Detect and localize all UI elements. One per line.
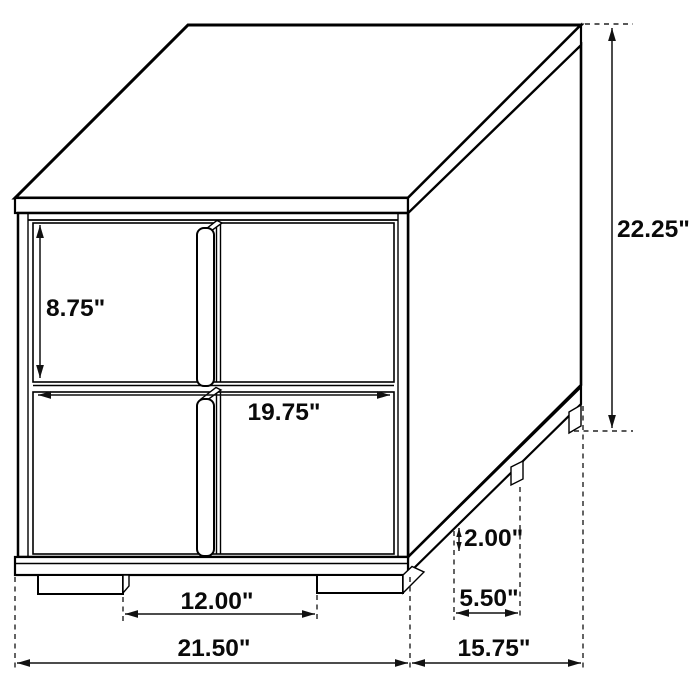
dim-overall-height: 22.25" [574,24,690,431]
dimension-diagram-page: 8.75" 19.75" 22.25" 2.00" 5.50" [0,0,700,700]
top-front-edge [15,198,408,213]
dim-overall-width-label: 21.50" [178,635,251,662]
front-left-foot [38,575,123,594]
dim-foot-depth-label: 5.50" [459,585,518,612]
nightstand-dimension-diagram: 8.75" 19.75" 22.25" 2.00" 5.50" [0,0,700,700]
dim-overall-height-label: 22.25" [617,216,690,243]
dim-overall-depth-label: 15.75" [458,635,531,662]
dim-foot-height-label: 2.00" [464,525,523,552]
dim-foot-gap-label: 12.00" [181,588,254,615]
front-left-foot-facet [123,575,129,593]
dim-drawer-height-label: 8.75" [46,295,105,322]
base-rail-front [15,557,408,575]
dim-foot-height: 2.00" [459,525,523,552]
dim-drawer-width-label: 19.75" [248,399,321,426]
dim-foot-gap: 12.00" [123,588,317,623]
front-right-foot [317,575,403,593]
lower-drawer-handle [197,399,214,556]
upper-drawer-handle [197,228,214,386]
